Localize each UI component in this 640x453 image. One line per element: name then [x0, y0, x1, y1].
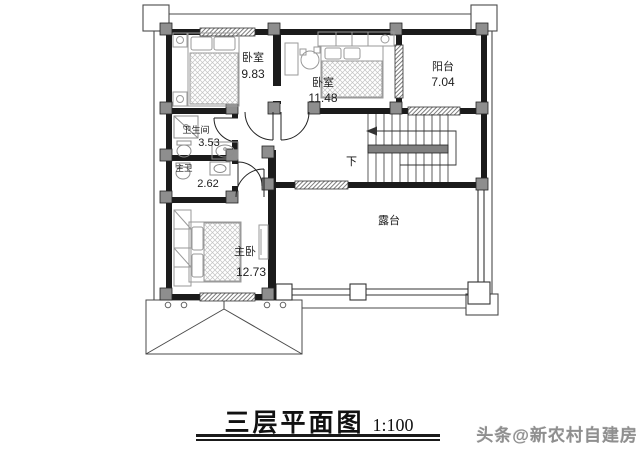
room-label-terrace: 露台 — [357, 215, 421, 227]
hip-roof — [146, 300, 302, 354]
floor-plan-drawing — [0, 0, 640, 453]
room-label-bedroom1: 卧室 — [221, 52, 285, 64]
room-area-bathroom: 3.53 — [183, 137, 235, 149]
round-table — [301, 51, 319, 69]
watermark: 头条@新农村自建房 — [466, 421, 638, 446]
drawing-scale: 1:100 — [373, 415, 414, 435]
window-terrace — [295, 181, 348, 189]
room-area-bedroom2: 11.48 — [291, 92, 355, 105]
desk — [285, 43, 298, 75]
title-underline-top — [196, 434, 440, 437]
room-label-master-bedroom: 主卧 — [213, 246, 277, 258]
stair-down-label: 下 — [346, 153, 357, 169]
window-balcony-door — [395, 45, 403, 98]
room-label-balcony: 阳台 — [411, 61, 475, 73]
terrace-railing — [276, 188, 490, 304]
door-master-bath — [238, 162, 262, 186]
stair-mid-rail — [368, 145, 448, 153]
staircase — [366, 114, 456, 182]
room-area-master-bath: 2.62 — [185, 178, 231, 190]
drawing-title: 三层平面图 — [224, 409, 364, 437]
room-area-balcony: 7.04 — [411, 76, 475, 89]
title-underline-bottom — [196, 439, 440, 441]
door-master-bedroom — [236, 169, 264, 197]
floor-plan-page: 卧室 9.83 卧室 11.48 阳台 7.04 卫生间 3.53 主卫 2.6… — [0, 0, 640, 453]
room-area-bedroom1: 9.83 — [221, 68, 285, 81]
door-bedroom1 — [245, 112, 273, 140]
door-bedroom2 — [281, 112, 309, 140]
window-master — [200, 293, 255, 301]
basin — [214, 165, 226, 173]
basin-counter — [210, 162, 230, 175]
window-stairwell — [408, 107, 460, 115]
room-label-master-bath: 主卫 — [161, 164, 207, 173]
window-bedroom1 — [200, 28, 255, 36]
room-label-bedroom2: 卧室 — [291, 77, 355, 89]
room-area-master-bedroom: 12.73 — [219, 266, 283, 279]
wall-gap — [273, 86, 281, 101]
room-label-bathroom: 卫生间 — [170, 126, 222, 136]
